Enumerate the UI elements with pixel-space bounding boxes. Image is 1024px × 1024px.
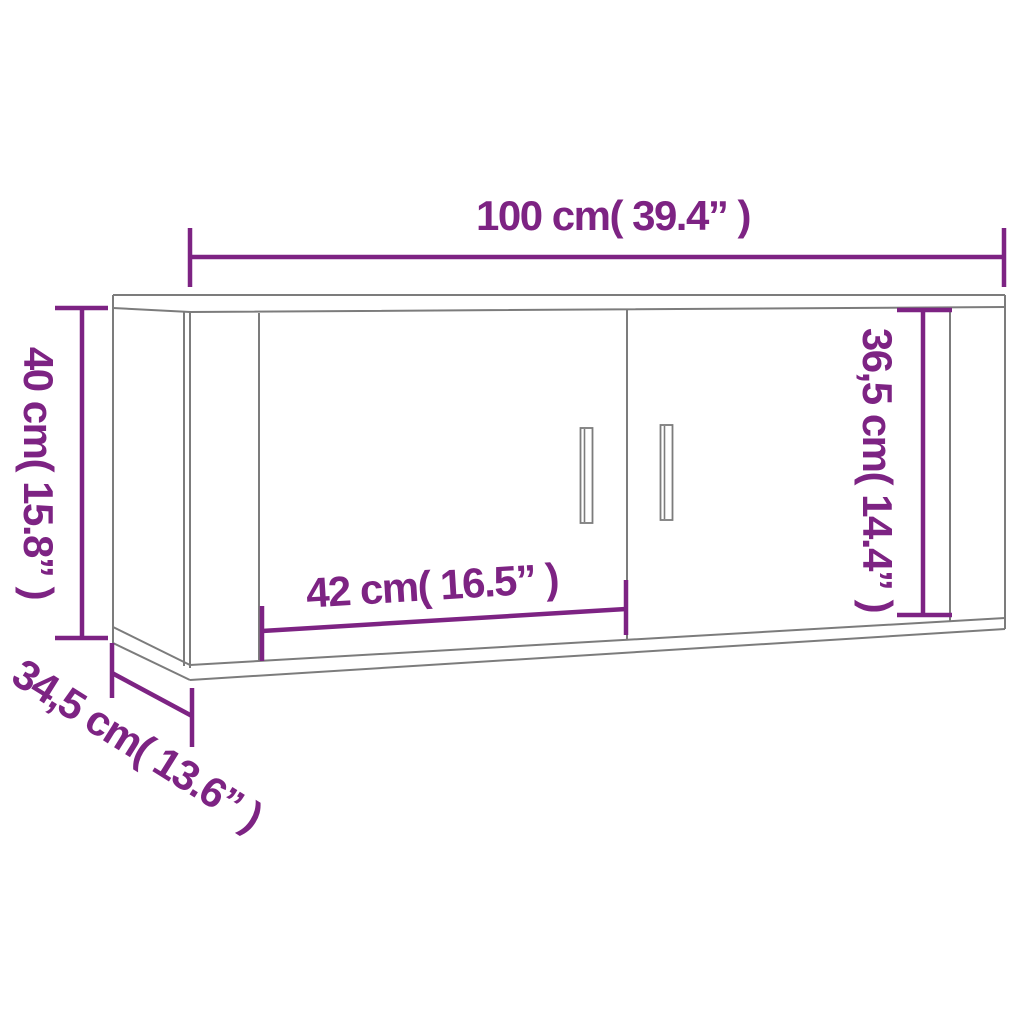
inner-height-dimension-label: 36,5 cm( 14.4” ) [856, 328, 898, 612]
inner-height-dimension-lines [897, 310, 952, 615]
height-dimension-label: 40 cm( 15.8” ) [17, 347, 59, 599]
left-door-handle [581, 428, 593, 523]
width-dimension-label: 100 cm( 39.4” ) [476, 195, 750, 237]
dimension-diagram: 100 cm( 39.4” ) 40 cm( 15.8” ) 36,5 cm( … [0, 0, 1024, 1024]
right-door-handle [661, 425, 673, 520]
height-dimension-lines [55, 308, 108, 638]
